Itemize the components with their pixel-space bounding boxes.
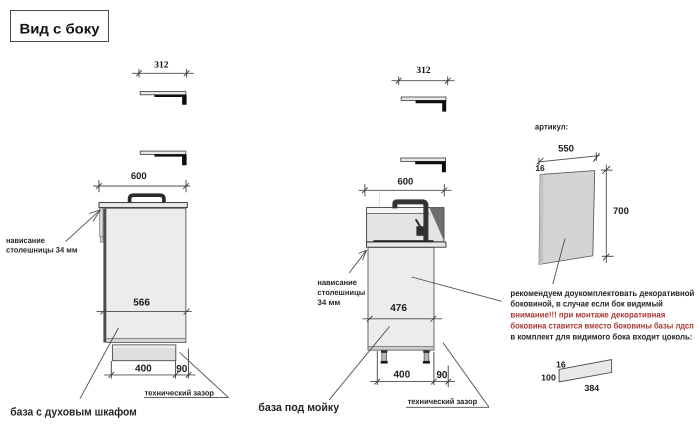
svg-text:566: 566 [133,298,150,309]
svg-text:технический зазор: технический зазор [408,397,478,406]
svg-text:столешницы 34 мм: столешницы 34 мм [6,245,78,254]
svg-text:база с духовым шкафом: база с духовым шкафом [10,406,137,418]
svg-text:312: 312 [416,66,431,76]
svg-text:16: 16 [535,163,545,173]
svg-text:боковиной, в случае если бок в: боковиной, в случае если бок видимый [510,298,663,308]
svg-text:600: 600 [131,171,147,182]
svg-text:400: 400 [393,370,410,381]
svg-text:рекомендуем доукомплектовать д: рекомендуем доукомплектовать декоративно… [510,288,694,298]
svg-text:16: 16 [556,360,566,370]
svg-text:100: 100 [541,373,556,383]
svg-text:артикул:: артикул: [535,122,568,132]
svg-text:боковина ставится вместо боков: боковина ставится вместо боковины базы л… [510,321,694,331]
svg-text:в комплект для видимого бока в: в комплект для видимого бока входит цоко… [510,332,692,342]
svg-text:476: 476 [390,303,407,314]
svg-text:нависание: нависание [317,278,357,287]
svg-text:внимание!!! при монтаже декора: внимание!!! при монтаже декоративная [510,310,665,320]
svg-text:нависание: нависание [6,236,45,245]
svg-text:700: 700 [613,206,629,217]
svg-text:600: 600 [397,177,413,188]
svg-text:34 мм: 34 мм [317,298,340,307]
svg-text:столешницы: столешницы [317,288,365,297]
svg-text:база под мойку: база под мойку [258,402,339,414]
svg-text:400: 400 [135,363,152,374]
svg-text:550: 550 [558,144,574,155]
svg-text:90: 90 [436,370,448,381]
svg-text:384: 384 [584,383,599,393]
svg-text:Вид с боку: Вид с боку [20,20,100,36]
svg-text:312: 312 [154,61,169,71]
svg-text:технический зазор: технический зазор [145,389,215,398]
